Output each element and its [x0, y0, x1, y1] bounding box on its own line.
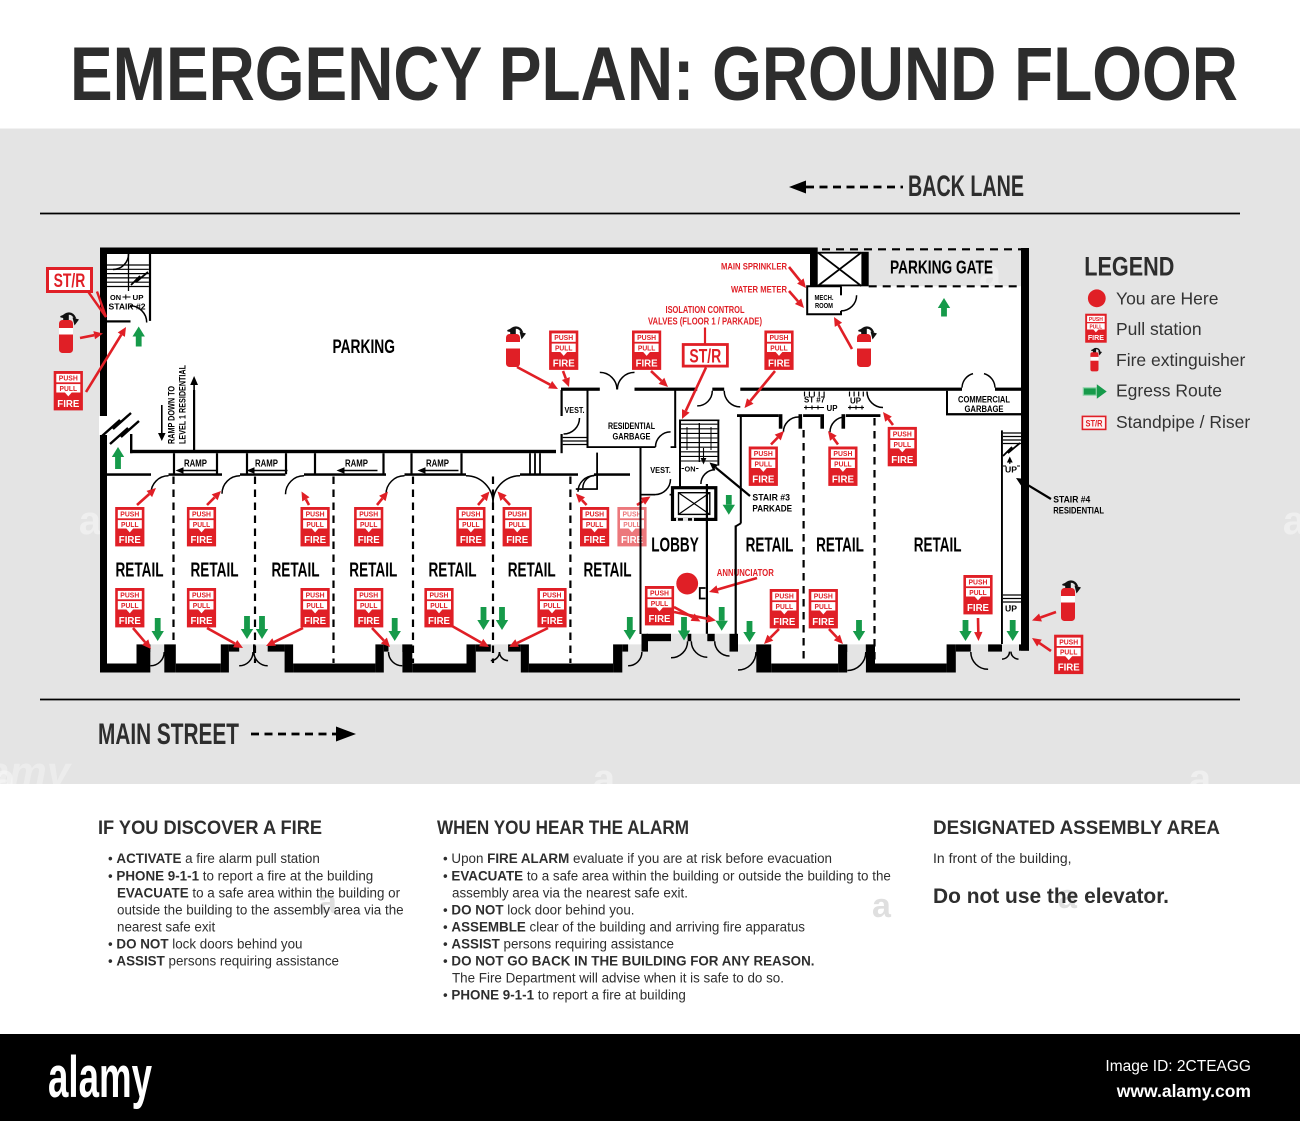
svg-text:PUSH: PUSH [554, 333, 573, 342]
svg-text:PULL: PULL [555, 343, 573, 352]
svg-text:PULL: PULL [193, 601, 211, 610]
svg-text:FIRE: FIRE [584, 535, 606, 546]
svg-text:• PHONE 9-1-1 to report a fire: • PHONE 9-1-1 to report a fire at the bu… [108, 869, 373, 884]
svg-text:RETAIL: RETAIL [272, 560, 320, 582]
svg-text:RETAIL: RETAIL [191, 560, 239, 582]
svg-text:PUSH: PUSH [508, 510, 527, 519]
svg-text:FIRE: FIRE [649, 614, 671, 625]
svg-text:Pull station: Pull station [1116, 319, 1202, 339]
svg-text:FIRE: FIRE [506, 535, 528, 546]
svg-text:VEST.: VEST. [650, 465, 671, 475]
svg-text:MAIN SPRINKLER: MAIN SPRINKLER [721, 262, 787, 272]
svg-text:WATER METER: WATER METER [731, 285, 787, 295]
svg-text:PULL: PULL [770, 343, 788, 352]
svg-text:MAIN STREET: MAIN STREET [98, 718, 239, 751]
svg-text:FIRE: FIRE [191, 616, 213, 627]
svg-text:PUSH: PUSH [543, 591, 562, 600]
svg-text:ANNUNCIATOR: ANNUNCIATOR [717, 568, 774, 579]
svg-text:PUSH: PUSH [306, 510, 325, 519]
svg-text:UP: UP [827, 403, 838, 413]
svg-text:PUSH: PUSH [359, 591, 378, 600]
svg-text:PUSH: PUSH [192, 510, 211, 519]
svg-text:PUSH: PUSH [754, 449, 773, 458]
svg-text:Do not use the elevator.: Do not use the elevator. [933, 884, 1169, 908]
svg-text:PUSH: PUSH [59, 374, 78, 383]
svg-text:PULL: PULL [121, 520, 139, 529]
svg-text:RAMP: RAMP [345, 458, 368, 469]
svg-text:PUSH: PUSH [1059, 637, 1078, 646]
svg-text:FIRE: FIRE [57, 399, 79, 410]
svg-text:FIRE: FIRE [636, 359, 658, 370]
svg-text:ST/R: ST/R [54, 271, 86, 292]
svg-text:RAMP: RAMP [184, 458, 207, 469]
svg-text:• ASSIST persons requiring ass: • ASSIST persons requiring assistance [108, 954, 339, 969]
svg-text:In front of the building,: In front of the building, [933, 850, 1072, 866]
svg-text:FIRE: FIRE [891, 455, 913, 466]
svg-text:ST/R: ST/R [1086, 418, 1103, 429]
svg-text:RESIDENTIAL: RESIDENTIAL [608, 421, 655, 432]
svg-text:PULL: PULL [306, 601, 324, 610]
svg-text:STAIR #4: STAIR #4 [1053, 495, 1091, 506]
svg-text:FIRE: FIRE [119, 616, 141, 627]
svg-text:RAMP: RAMP [255, 458, 278, 469]
svg-text:IF YOU DISCOVER A FIRE: IF YOU DISCOVER A FIRE [98, 817, 322, 839]
svg-text:The Fire Department will advis: The Fire Department will advise when it … [452, 971, 784, 986]
svg-text:Image ID: 2CTEAGG: Image ID: 2CTEAGG [1105, 1058, 1251, 1075]
svg-text:FIRE: FIRE [967, 603, 989, 614]
svg-text:amy: amy [0, 748, 73, 795]
svg-text:PULL: PULL [543, 601, 561, 610]
svg-text:nearest safe exit: nearest safe exit [117, 920, 216, 935]
svg-text:PUSH: PUSH [461, 510, 480, 519]
svg-text:PUSH: PUSH [623, 510, 642, 519]
svg-text:ISOLATION CONTROL: ISOLATION CONTROL [666, 305, 745, 316]
svg-text:PULL: PULL [834, 459, 852, 468]
svg-text:FIRE: FIRE [752, 475, 774, 486]
svg-text:PULL: PULL [360, 520, 378, 529]
svg-text:ON: ON [685, 465, 696, 474]
svg-text:UP: UP [850, 396, 861, 406]
svg-text:GARBAGE: GARBAGE [613, 432, 651, 443]
svg-text:alamy: alamy [48, 1045, 152, 1110]
svg-text:LOBBY: LOBBY [651, 534, 699, 557]
svg-text:PULL: PULL [121, 601, 139, 610]
svg-text:RAMP: RAMP [426, 458, 449, 469]
svg-text:RETAIL: RETAIL [508, 560, 556, 582]
svg-text:PULL: PULL [638, 343, 656, 352]
svg-text:RETAIL: RETAIL [116, 560, 164, 582]
svg-text:assembly area via the nearest: assembly area via the nearest safe exit. [452, 886, 688, 901]
svg-text:WHEN YOU HEAR THE ALARM: WHEN YOU HEAR THE ALARM [437, 817, 689, 839]
svg-text:PUSH: PUSH [120, 591, 139, 600]
svg-text:VALVES (FLOOR 1 / PARKADE): VALVES (FLOOR 1 / PARKADE) [648, 317, 762, 328]
svg-text:EMERGENCY PLAN: GROUND FLOOR: EMERGENCY PLAN: GROUND FLOOR [70, 32, 1238, 117]
svg-text:RAMP DOWN TO: RAMP DOWN TO [167, 386, 177, 444]
svg-text:• Upon FIRE ALARM evaluate if: • Upon FIRE ALARM evaluate if you are at… [443, 851, 832, 866]
svg-text:FIRE: FIRE [304, 535, 326, 546]
svg-text:UP: UP [1005, 466, 1018, 475]
svg-text:PULL: PULL [1089, 324, 1102, 330]
svg-text:• PHONE 9-1-1 to report a fire: • PHONE 9-1-1 to report a fire at buildi… [443, 988, 686, 1003]
svg-text:FIRE: FIRE [1088, 333, 1104, 342]
svg-text:Fire extinguisher: Fire extinguisher [1116, 350, 1246, 370]
svg-text:ROOM: ROOM [815, 301, 833, 310]
svg-text:VEST.: VEST. [565, 405, 585, 415]
svg-text:• DO NOT lock door behind you.: • DO NOT lock door behind you. [443, 903, 635, 918]
svg-text:• DO NOT GO BACK IN THE BUILDI: • DO NOT GO BACK IN THE BUILDING FOR ANY… [443, 954, 814, 969]
svg-text:UP: UP [133, 293, 144, 302]
svg-text:PULL: PULL [430, 601, 448, 610]
svg-text:PARKADE: PARKADE [752, 504, 792, 515]
svg-text:FIRE: FIRE [304, 616, 326, 627]
svg-text:FIRE: FIRE [812, 617, 834, 628]
svg-text:FIRE: FIRE [119, 535, 141, 546]
svg-text:RESIDENTIAL: RESIDENTIAL [1053, 506, 1104, 517]
svg-text:PULL: PULL [776, 602, 794, 611]
svg-text:FIRE: FIRE [832, 475, 854, 486]
svg-text:PUSH: PUSH [585, 510, 604, 519]
svg-text:FIRE: FIRE [358, 535, 380, 546]
svg-text:• EVACUATE to a safe area with: • EVACUATE to a safe area within the bui… [443, 869, 891, 884]
svg-text:PUSH: PUSH [637, 333, 656, 342]
svg-text:a: a [79, 499, 102, 543]
svg-text:FIRE: FIRE [428, 616, 450, 627]
svg-text:PULL: PULL [755, 459, 773, 468]
svg-text:outside the building to the as: outside the building to the assembly are… [117, 903, 404, 918]
svg-text:PULL: PULL [508, 520, 526, 529]
svg-text:a: a [1189, 757, 1212, 801]
svg-text:PULL: PULL [894, 440, 912, 449]
svg-text:PARKING: PARKING [332, 336, 395, 358]
svg-text:EVACUATE to a safe area within: EVACUATE to a safe area within the build… [117, 886, 401, 901]
svg-text:PUSH: PUSH [814, 592, 833, 601]
svg-text:PULL: PULL [306, 520, 324, 529]
svg-text:• ACTIVATE a fire alarm pull: • ACTIVATE a fire alarm pull station [108, 851, 320, 866]
svg-text:ST/R: ST/R [689, 345, 721, 367]
svg-text:a: a [593, 757, 616, 801]
svg-text:PUSH: PUSH [650, 589, 669, 598]
svg-text:RETAIL: RETAIL [746, 535, 794, 557]
svg-text:FIRE: FIRE [358, 616, 380, 627]
svg-text:• ASSIST persons requiring ass: • ASSIST persons requiring assistance [443, 937, 674, 952]
svg-text:You are Here: You are Here [1116, 289, 1218, 309]
svg-text:FIRE: FIRE [460, 535, 482, 546]
svg-text:PUSH: PUSH [192, 591, 211, 600]
svg-text:PULL: PULL [193, 520, 211, 529]
svg-text:PULL: PULL [623, 520, 641, 529]
svg-text:PUSH: PUSH [893, 430, 912, 439]
svg-text:PUSH: PUSH [430, 591, 449, 600]
svg-text:PUSH: PUSH [120, 510, 139, 519]
svg-text:PUSH: PUSH [1089, 317, 1103, 323]
svg-text:COMMERCIAL: COMMERCIAL [958, 395, 1010, 405]
svg-text:RETAIL: RETAIL [349, 560, 397, 582]
svg-text:PUSH: PUSH [969, 578, 988, 587]
svg-text:PULL: PULL [651, 599, 669, 608]
svg-text:LEVEL 1 RESIDENTIAL: LEVEL 1 RESIDENTIAL [178, 365, 188, 444]
svg-text:PUSH: PUSH [770, 333, 789, 342]
svg-text:FIRE: FIRE [191, 535, 213, 546]
svg-text:FIRE: FIRE [773, 617, 795, 628]
svg-text:BACK LANE: BACK LANE [908, 170, 1024, 203]
svg-text:FIRE: FIRE [1058, 663, 1080, 674]
svg-text:PUSH: PUSH [306, 591, 325, 600]
svg-text:Standpipe / Riser: Standpipe / Riser [1116, 412, 1250, 432]
svg-text:Egress Route: Egress Route [1116, 381, 1222, 401]
svg-text:RETAIL: RETAIL [914, 535, 962, 557]
svg-text:PUSH: PUSH [775, 592, 794, 601]
svg-text:PULL: PULL [360, 601, 378, 610]
svg-text:FIRE: FIRE [553, 359, 575, 370]
svg-text:PULL: PULL [969, 588, 987, 597]
svg-text:PUSH: PUSH [359, 510, 378, 519]
svg-text:a: a [1283, 499, 1300, 543]
svg-text:ON: ON [110, 293, 121, 302]
svg-text:RETAIL: RETAIL [429, 560, 477, 582]
svg-text:FIRE: FIRE [541, 616, 563, 627]
svg-text:a: a [872, 887, 892, 925]
svg-text:www.alamy.com: www.alamy.com [1116, 1081, 1251, 1101]
svg-text:• ASSEMBLE clear of the buildi: • ASSEMBLE clear of the building and arr… [443, 920, 805, 935]
svg-text:FIRE: FIRE [768, 359, 790, 370]
svg-text:STAIR #3: STAIR #3 [752, 493, 790, 504]
svg-text:UP: UP [1005, 605, 1018, 614]
svg-text:LEGEND: LEGEND [1084, 252, 1174, 282]
svg-text:PULL: PULL [60, 384, 78, 393]
svg-text:• DO NOT lock doors behind you: • DO NOT lock doors behind you [108, 937, 303, 952]
svg-text:ST #7: ST #7 [804, 395, 825, 405]
svg-text:PUSH: PUSH [833, 449, 852, 458]
svg-text:RETAIL: RETAIL [584, 560, 632, 582]
svg-text:GARBAGE: GARBAGE [965, 404, 1004, 414]
svg-text:PULL: PULL [586, 520, 604, 529]
svg-text:PULL: PULL [1060, 648, 1078, 657]
svg-text:PULL: PULL [815, 602, 833, 611]
svg-text:DESIGNATED ASSEMBLY AREA: DESIGNATED ASSEMBLY AREA [933, 817, 1220, 839]
svg-text:PARKING GATE: PARKING GATE [890, 257, 993, 278]
svg-text:RETAIL: RETAIL [816, 535, 864, 557]
svg-text:PULL: PULL [462, 520, 480, 529]
